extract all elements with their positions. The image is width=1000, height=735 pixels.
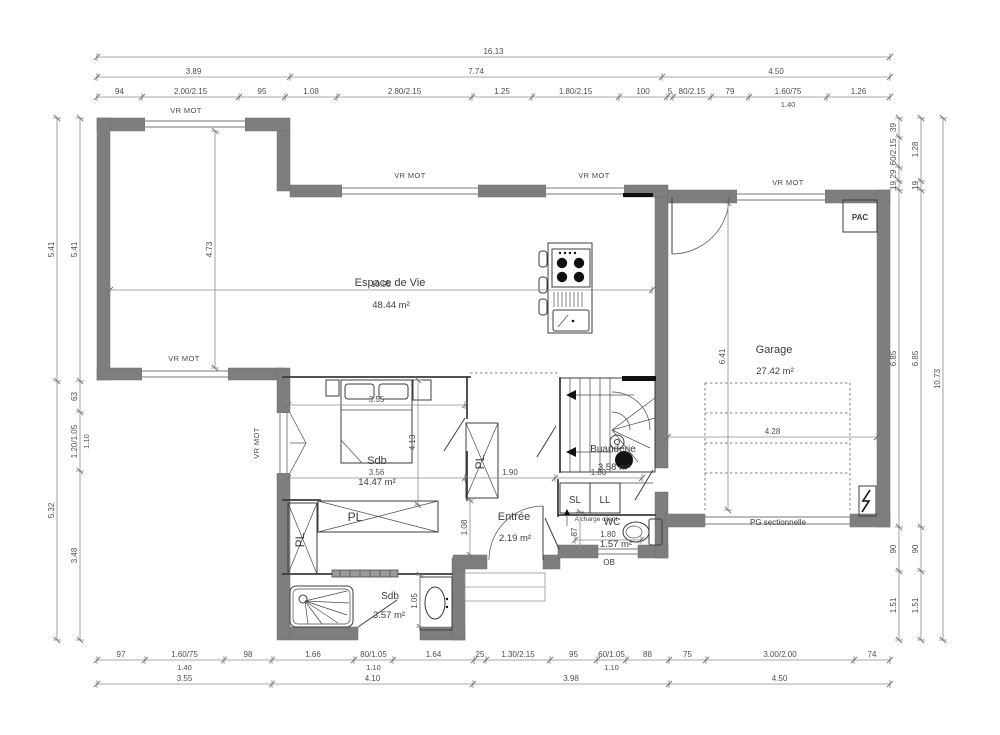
dim-label: 75 [683,650,692,659]
lightning-icon [862,490,870,512]
stairs-up-arrow [566,390,576,400]
garage-sectional-door [705,383,850,524]
room-label-entree: Entrée [498,511,530,523]
dim-label: 10.95 [371,280,392,289]
dim-label: 6.41 [718,348,727,364]
vr-mot-label: VR MOT [170,106,202,115]
dim-sublabel: 1.40 [177,663,192,672]
closets [288,423,498,574]
sink-drainer-icon [553,292,589,331]
dim-label: 3.00/2.00 [763,650,797,659]
dim-sublabel: 1.10 [82,434,91,449]
dim-label: 7.74 [468,67,484,76]
pl-label: PL [473,454,487,469]
dim-label: 80/2.15 [679,87,706,96]
dim-label: 1.51 [889,597,898,613]
window-mid-1 [342,185,478,197]
vr-mot-label: VR MOT [772,178,804,187]
room-label-bedroom: Sdb [367,455,387,467]
room-area-garage: 27.42 m² [756,366,794,377]
staircase [560,376,656,472]
dim-label: 10.73 [933,368,942,389]
dim-label: 1.90 [502,468,518,477]
dim-sublabel: 1.10 [366,663,381,672]
vr-mot-label: VR MOT [578,171,610,180]
floor-plan-canvas: PAC A charge client Espace de Vie 48.44 … [0,0,1000,735]
window-bedroom-left [277,413,306,473]
dim-label: 1.05 [410,593,419,609]
dim-label: 1.60/75 [171,650,198,659]
dim-sublabel: 1.40 [781,100,796,109]
dim-sublabel: 1.10 [604,663,619,672]
dim-label: 3.56 [369,468,385,477]
pg-sectionnelle-label: PG sectionnelle [750,518,807,527]
dim-label: 4.50 [772,674,788,683]
dim-label: 3.89 [186,67,202,76]
pac-unit: PAC [843,200,877,232]
dim-label: 90 [889,544,898,553]
dim-label: 74 [868,650,877,659]
door-wc [545,518,559,549]
dim-label: 79 [726,87,735,96]
porch [465,573,545,601]
dim-label: 1.25 [494,87,510,96]
dim-label: 6.85 [911,350,920,366]
kitchen-island [539,243,592,333]
pl-label: PL [293,532,307,547]
dim-label: 95 [258,87,267,96]
room-label-buanderie: Buanderie [590,444,636,455]
door-bedroom [444,418,465,451]
dim-label: 3.48 [70,547,79,563]
dim-label: 39 [889,123,898,132]
window-top-left [145,118,245,131]
window-mid-2 [546,185,624,197]
shower-icon [290,586,353,627]
dim-label: 97 [117,650,126,659]
dim-label: 3.98 [563,674,579,683]
room-area-living: 48.44 m² [372,300,410,311]
dim-label: 1.20/1.05 [70,424,79,458]
room-label-sdb: Sdb [381,591,399,602]
dim-label: 1.80 [600,530,616,539]
vr-mot-label: VR MOT [252,427,261,459]
sl-label: SL [569,495,582,506]
dim-label: 1.08 [460,519,469,535]
dim-label: 2.00/2.15 [174,87,208,96]
dim-label: 4.10 [365,674,381,683]
stairs-up-arrow-2 [566,447,576,457]
dimension-lines: 16.133.897.744.50942.00/2.15951.082.80/2… [47,47,947,688]
dim-label: 94 [115,87,124,96]
window-garage [737,190,825,203]
dim-label: 29 [889,169,898,178]
window-west-bottom [142,368,228,380]
dim-label: 1.60/75 [775,87,802,96]
room-label-wc: WC [604,517,621,528]
room-area-sdb: 3.57 m² [373,610,405,621]
dim-label: 25 [476,650,485,659]
dim-label: 6.85 [889,350,898,366]
dim-label: 87 [570,527,579,536]
dim-label: 60/2.15 [889,138,898,165]
room-label-garage: Garage [756,344,793,356]
dim-label: 3.55 [177,674,193,683]
dim-label: 63 [70,392,79,401]
room-area-bedroom: 14.47 m² [358,477,396,488]
dim-label: 19 [911,181,920,190]
cooktop-icon [552,249,590,287]
dim-label: 1.80/2.15 [559,87,593,96]
electrical-panel [859,486,876,516]
dim-label: 98 [244,650,253,659]
vr-mot-label: VR MOT [394,171,426,180]
room-area-entree: 2.19 m² [499,533,531,544]
vr-mot-label: VR MOT [168,354,200,363]
windows [142,118,825,473]
dim-label: 3.55 [369,395,385,404]
floor-plan-drawing: PAC A charge client Espace de Vie 48.44 … [0,0,1000,735]
dim-label: 4.13 [408,434,417,450]
dim-label: 1.30/2.15 [501,650,535,659]
dim-label: 1.64 [426,650,442,659]
ll-label: LL [599,495,611,506]
closet-wide [318,501,438,532]
dim-label: 1.66 [305,650,321,659]
dim-label: 1.26 [851,87,867,96]
dim-label: 90 [911,544,920,553]
lintel-bar [623,193,653,197]
dim-label: 16.13 [483,47,504,56]
dim-label: 100 [636,87,650,96]
door-buanderie [537,426,556,457]
radiator [332,570,398,577]
pac-label: PAC [852,213,869,222]
ob-label: OB [603,558,615,567]
washbasin-icon [420,577,452,630]
dim-label: 88 [643,650,652,659]
dim-label: 80/1.05 [360,650,387,659]
dim-label: 5 [668,87,673,96]
window-motor-labels: VR MOT VR MOT VR MOT VR MOT VR MOT VR MO… [168,106,804,459]
dim-label: 5.32 [47,502,56,518]
dim-label: 5.41 [47,241,56,257]
dim-label: 4.73 [205,241,214,257]
dim-label: 1.08 [303,87,319,96]
dim-label: 60/1.05 [598,650,625,659]
dim-label: 4.28 [765,427,781,436]
room-area-wc: 1.57 m² [600,539,632,550]
dim-label: 19 [889,181,898,190]
dim-label: 4.50 [768,67,784,76]
dim-label: 2.80/2.15 [388,87,422,96]
dim-label: 5.41 [70,241,79,257]
dim-label: 95 [569,650,578,659]
dim-label: 1.80 [591,468,607,477]
dim-label: 1.51 [911,597,920,613]
dim-label: 1.28 [911,141,920,157]
door-buanderie-garage [635,470,653,500]
pl-label: PL [348,510,363,524]
door-living-garage [672,197,729,254]
